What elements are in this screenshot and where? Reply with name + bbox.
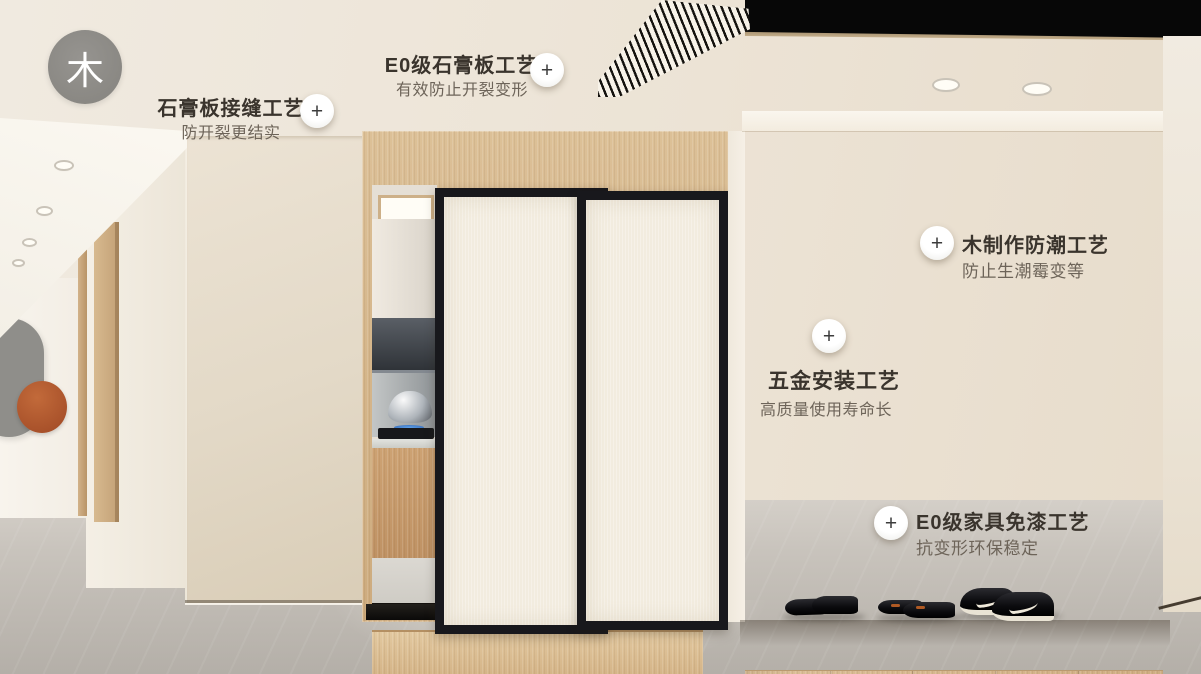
- callout-e0-plasterboard: E0级石膏板工艺 有效防止开裂变形 +: [382, 49, 586, 101]
- callout-hardware-install: + 五金安装工艺 高质量使用寿命长: [760, 319, 920, 417]
- plus-button-hardware[interactable]: +: [812, 319, 846, 353]
- callout-subtitle: 有效防止开裂变形: [376, 76, 548, 100]
- gas-stove: [378, 428, 434, 439]
- kitchen-wall: [372, 219, 437, 318]
- callout-subtitle: 抗变形环保稳定: [916, 534, 1039, 559]
- downlight-icon: [38, 208, 51, 214]
- hallway-door-frame: [94, 222, 119, 522]
- callout-plasterboard-joint: 石膏板接缝工艺 防开裂更结实 +: [148, 92, 358, 144]
- shoe-cabinet: [745, 670, 1163, 674]
- callout-title: E0级石膏板工艺: [382, 49, 540, 78]
- plus-icon: +: [931, 233, 943, 254]
- callout-subtitle: 防开裂更结实: [148, 119, 314, 143]
- plus-icon: +: [823, 326, 835, 347]
- scene-hallway: 木 石膏板接缝工艺 防开裂更结实 + E0级石膏板工艺 有效防止开裂变形 + +…: [0, 0, 1201, 674]
- callout-title: E0级家具免漆工艺: [916, 506, 1089, 535]
- sliding-door-right[interactable]: [577, 191, 728, 630]
- callout-subtitle: 高质量使用寿命长: [760, 396, 892, 420]
- plus-icon: +: [311, 101, 323, 122]
- plus-icon: +: [541, 60, 553, 81]
- loafer-accent: [916, 606, 925, 609]
- kitchen-counter: [372, 439, 437, 448]
- plus-button-joint[interactable]: +: [300, 94, 334, 128]
- downlight-icon: [24, 240, 35, 245]
- range-hood: [372, 318, 437, 373]
- category-badge-wood: 木: [48, 30, 122, 104]
- wall-art-orange-circle: [17, 381, 67, 433]
- dress-shoe: [812, 596, 858, 614]
- loafer-shoe: [903, 602, 955, 618]
- foreground-wall: [185, 136, 367, 604]
- downlight-icon: [1024, 84, 1050, 94]
- plus-button-furniture[interactable]: +: [874, 506, 908, 540]
- plus-button-board[interactable]: +: [530, 53, 564, 87]
- wall-strip: [728, 131, 745, 622]
- callout-title: 五金安装工艺: [768, 365, 900, 395]
- callout-wood-moistureproof: + 木制作防潮工艺 防止生潮霉变等: [920, 226, 1120, 282]
- ac-vent-grille-icon: [598, 0, 750, 97]
- callout-title: 石膏板接缝工艺: [148, 92, 314, 121]
- hallway-wood-trim: [78, 238, 87, 516]
- plus-button-moisture[interactable]: +: [920, 226, 954, 260]
- kitchen-view: [372, 185, 437, 618]
- plus-icon: +: [885, 513, 897, 534]
- wall-base-light: [185, 603, 367, 605]
- callout-e0-furniture: + E0级家具免漆工艺 抗变形环保稳定: [874, 506, 1090, 560]
- kitchen-floor: [372, 558, 437, 603]
- callout-subtitle: 防止生潮霉变等: [962, 257, 1085, 282]
- sneaker-shoe: [992, 592, 1054, 621]
- right-wall: [1163, 36, 1201, 612]
- ceiling-fascia: [742, 111, 1168, 131]
- door-wood-header: [372, 630, 703, 674]
- cabinet-floor-shadow: [740, 620, 1170, 646]
- badge-label: 木: [66, 40, 104, 95]
- ceiling-dark-recess: [745, 0, 1201, 38]
- downlight-icon: [14, 261, 23, 265]
- downlight-icon: [56, 162, 72, 169]
- callout-title: 木制作防潮工艺: [962, 229, 1109, 258]
- loafer-accent: [891, 604, 900, 607]
- kitchen-base-cabinet: [372, 448, 437, 558]
- downlight-icon: [934, 80, 958, 90]
